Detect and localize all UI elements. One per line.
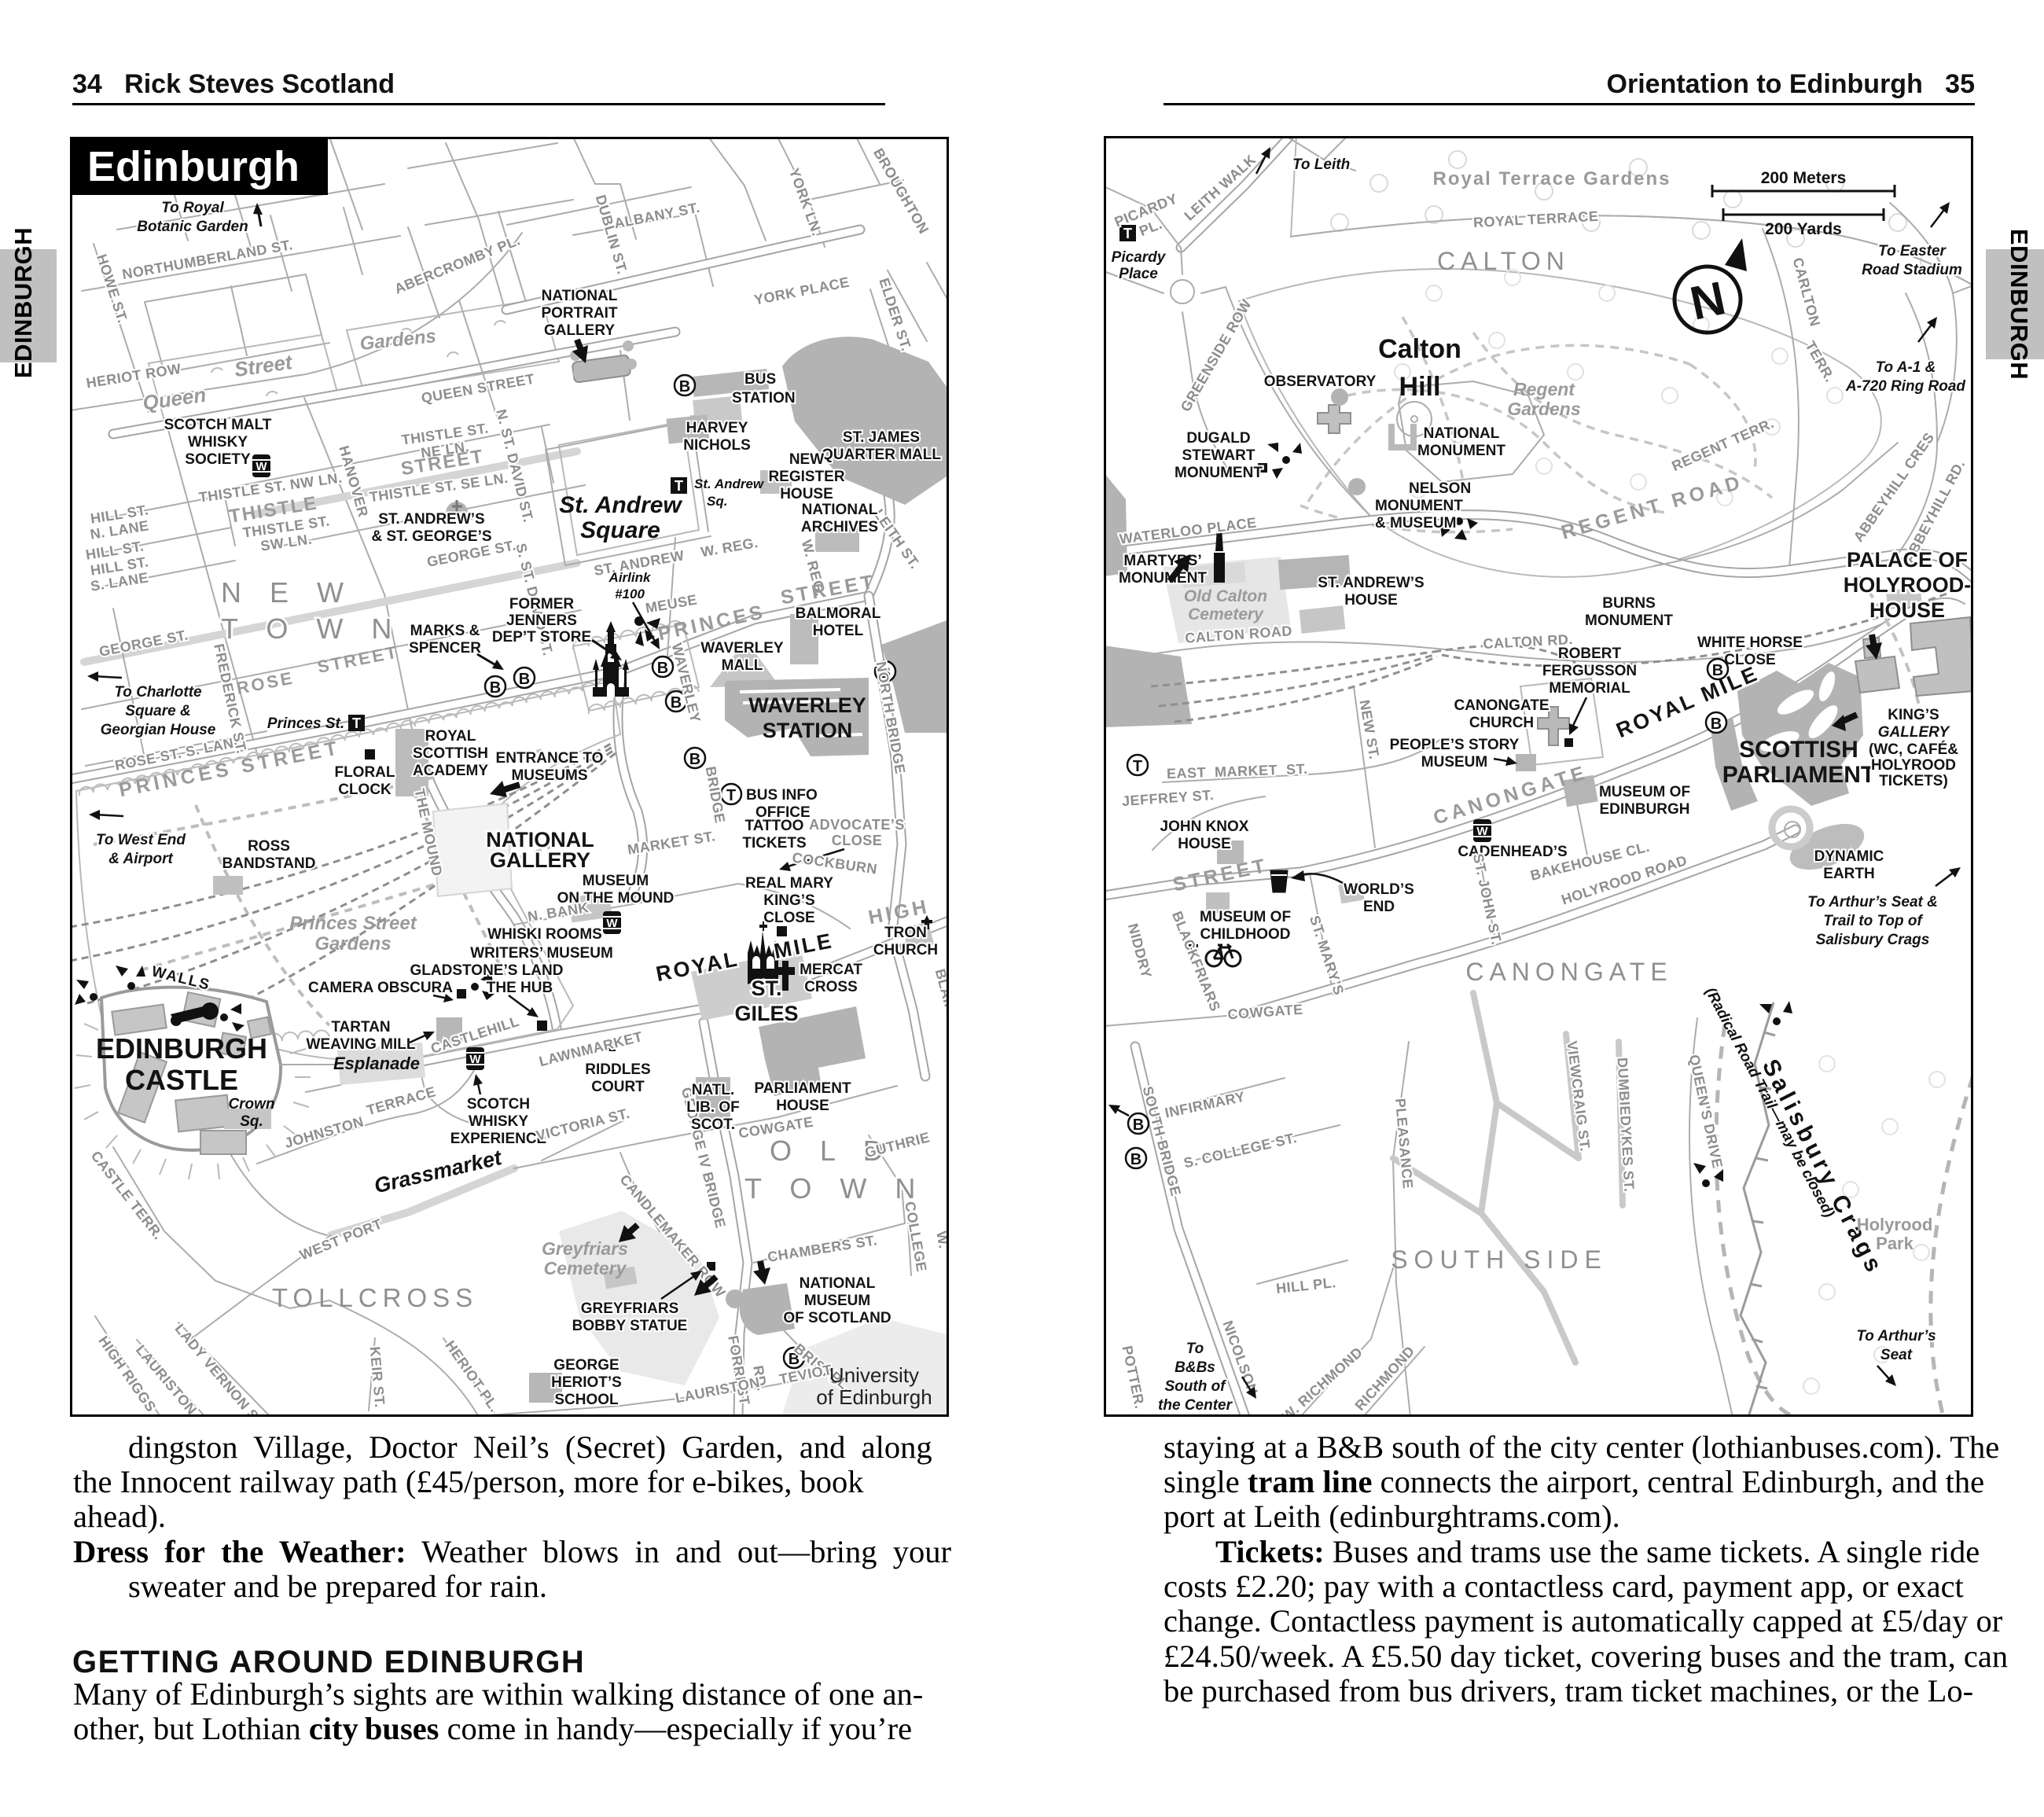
svg-text:CHILDHOOD: CHILDHOOD [1200,926,1290,943]
svg-text:GLADSTONE’S LAND: GLADSTONE’S LAND [410,962,564,979]
svg-text:DEP’T STORE: DEP’T STORE [492,629,591,646]
svg-text:ACADEMY: ACADEMY [413,763,488,779]
svg-text:& Airport: & Airport [108,851,173,867]
svg-text:N E W: N E W [221,576,354,609]
svg-text:EXPERIENCE: EXPERIENCE [450,1131,546,1147]
svg-text:ST.: ST. [751,977,781,1000]
svg-text:DUGALD: DUGALD [1186,430,1250,447]
svg-text:To: To [1186,1341,1204,1357]
svg-text:St. Andrew: St. Andrew [559,492,682,518]
svg-text:WRITERS’ MUSEUM: WRITERS’ MUSEUM [470,945,613,962]
svg-text:NATIONAL: NATIONAL [542,288,618,304]
svg-text:Gardens: Gardens [314,933,391,954]
svg-text:SPENCER: SPENCER [409,640,481,657]
svg-text:SOUTH SIDE: SOUTH SIDE [1391,1245,1608,1274]
svg-text:Sq.: Sq. [707,494,727,509]
svg-text:B: B [689,751,700,768]
svg-text:Trail to Top of: Trail to Top of [1823,913,1923,929]
svg-text:ST. JAMES: ST. JAMES [843,429,920,446]
svg-text:SCOTTISH: SCOTTISH [1739,737,1858,763]
svg-text:END: END [1363,899,1395,915]
svg-text:Airlink: Airlink [608,570,652,585]
svg-text:Calton: Calton [1378,334,1461,364]
svg-text:JOHN KNOX: JOHN KNOX [1160,818,1249,835]
svg-text:MARKS &: MARKS & [410,623,480,639]
svg-text:To Arthur’s Seat &: To Arthur’s Seat & [1807,894,1938,910]
svg-text:HOUSE: HOUSE [1178,836,1231,852]
svg-text:To West End: To West End [96,832,186,848]
svg-text:PEOPLE’S STORY: PEOPLE’S STORY [1390,737,1520,753]
svg-text:EDINBURGH: EDINBURGH [96,1032,267,1065]
svg-text:STATION: STATION [732,390,796,406]
svg-text:TRON: TRON [884,925,927,941]
svg-text:BALMORAL: BALMORAL [796,605,881,622]
svg-text:Botanic Garden: Botanic Garden [137,219,248,235]
svg-text:OBSERVATORY: OBSERVATORY [1264,373,1377,390]
svg-text:CLOSE: CLOSE [832,833,883,848]
svg-text:MALL: MALL [722,657,763,674]
svg-text:STEWART: STEWART [1182,447,1255,464]
svg-text:HOLYROOD: HOLYROOD [1871,757,1956,774]
svg-text:200 Meters: 200 Meters [1761,169,1847,187]
svg-text:KING’S: KING’S [1888,707,1939,723]
svg-text:MUSEUMS: MUSEUMS [511,767,587,784]
svg-text:ROSS: ROSS [248,838,290,855]
svg-text:WHISKY: WHISKY [469,1113,528,1130]
svg-text:SCHOOL: SCHOOL [554,1392,619,1408]
svg-text:Edinburgh: Edinburgh [87,143,300,190]
svg-text:B: B [1711,715,1722,733]
svg-text:University: University [829,1363,919,1387]
svg-text:MONUMENT: MONUMENT [1175,465,1263,481]
svg-text:Cemetery: Cemetery [1188,605,1264,623]
svg-text:B: B [1130,1151,1141,1168]
svg-text:Royal Terrace Gardens: Royal Terrace Gardens [1432,168,1671,189]
svg-text:GALLERY: GALLERY [1878,724,1951,741]
svg-text:SCOTCH: SCOTCH [467,1096,530,1113]
svg-text:ST. ANDREW’S: ST. ANDREW’S [1318,575,1424,591]
svg-text:NICHOLS: NICHOLS [683,437,751,454]
svg-text:A-720 Ring Road: A-720 Ring Road [1845,378,1965,395]
svg-text:Sq.: Sq. [240,1113,263,1130]
svg-text:BOBBY STATUE: BOBBY STATUE [572,1318,688,1334]
svg-text:SCOTTISH: SCOTTISH [413,745,488,762]
svg-text:Seat: Seat [1880,1347,1913,1363]
svg-text:Park: Park [1876,1234,1913,1253]
svg-text:CANONGATE: CANONGATE [1465,958,1672,986]
svg-text:#100: #100 [615,587,645,601]
svg-text:NEW: NEW [789,451,824,468]
svg-text:HARVEY: HARVEY [686,420,748,436]
svg-text:MONUMENT: MONUMENT [1585,612,1673,629]
svg-text:Salisbury Crags: Salisbury Crags [1816,932,1930,948]
svg-text:ROYAL: ROYAL [425,728,476,745]
svg-text:ENTRANCE TO: ENTRANCE TO [496,750,604,767]
svg-text:Square: Square [580,517,660,543]
svg-text:HOTEL: HOTEL [813,623,864,639]
svg-text:CROSS: CROSS [804,979,858,995]
svg-text:W: W [469,1053,481,1066]
svg-text:B: B [1712,662,1723,679]
svg-text:CHURCH: CHURCH [873,942,938,958]
svg-text:Old Calton: Old Calton [1184,587,1267,605]
svg-text:W: W [606,917,618,930]
svg-text:TOLLCROSS: TOLLCROSS [272,1283,478,1312]
svg-text:W: W [1476,825,1488,838]
svg-text:LIB. OF: LIB. OF [686,1099,740,1116]
svg-text:T: T [1133,758,1142,775]
svg-text:T: T [352,715,361,731]
svg-text:PARLIAMENT: PARLIAMENT [1722,762,1875,788]
svg-text:NATIONAL: NATIONAL [1424,425,1500,442]
svg-text:BUS INFO: BUS INFO [746,787,818,804]
svg-text:SCOTCH MALT: SCOTCH MALT [164,417,272,433]
svg-text:PARLIAMENT: PARLIAMENT [754,1080,851,1097]
svg-text:BUS: BUS [744,371,776,388]
svg-text:of Edinburgh: of Edinburgh [816,1385,932,1409]
svg-text:BANDSTAND: BANDSTAND [222,855,316,872]
svg-text:FERGUSSON: FERGUSSON [1542,663,1637,679]
svg-text:CHURCH: CHURCH [1469,715,1534,731]
svg-text:CAMERA OBSCURA: CAMERA OBSCURA [308,980,453,996]
svg-text:CLOCK: CLOCK [338,782,392,798]
svg-text:GREYFRIARS: GREYFRIARS [581,1300,679,1317]
svg-text:To Leith: To Leith [1292,156,1350,173]
svg-text:To A-1 &: To A-1 & [1876,359,1936,376]
svg-text:THE HUB: THE HUB [487,980,553,996]
svg-text:GALLERY: GALLERY [544,322,615,339]
svg-text:GALLERY: GALLERY [490,848,590,872]
svg-text:Picardy: Picardy [1112,249,1167,266]
svg-text:Gardens: Gardens [1507,399,1580,419]
svg-text:MERCAT: MERCAT [800,962,862,978]
svg-text:South of: South of [1164,1378,1226,1395]
svg-text:Greyfriars: Greyfriars [542,1238,628,1259]
svg-text:B: B [657,660,668,677]
svg-text:Princes Street: Princes Street [289,913,417,934]
svg-text:EARTH: EARTH [1823,866,1874,882]
svg-text:WORLD’S: WORLD’S [1344,881,1414,898]
svg-text:MONUMENT: MONUMENT [1375,498,1463,514]
svg-text:B: B [490,679,501,697]
svg-text:ADVOCATE’S: ADVOCATE’S [809,817,905,833]
svg-text:WHISKI ROOMS: WHISKI ROOMS [487,926,602,943]
svg-text:NELSON: NELSON [1409,480,1471,497]
svg-text:BURNS: BURNS [1602,595,1656,612]
svg-text:HOUSE: HOUSE [1869,598,1945,622]
svg-text:(WC, CAFÉ&: (WC, CAFÉ& [1869,741,1958,758]
svg-text:& ST. GEORGE’S: & ST. GEORGE’S [371,528,491,545]
svg-text:GEORGE: GEORGE [553,1357,619,1374]
svg-text:the Center: the Center [1158,1397,1233,1414]
svg-text:WHITE HORSE: WHITE HORSE [1697,634,1803,651]
svg-text:TARTAN: TARTAN [331,1019,390,1035]
svg-text:RIDDLES: RIDDLES [585,1061,650,1078]
svg-text:FORMER: FORMER [509,596,575,612]
svg-text:TICKETS): TICKETS) [1879,773,1948,789]
svg-text:MONUMENT: MONUMENT [1417,443,1505,459]
svg-text:B: B [679,378,690,395]
svg-text:MUSEUM OF: MUSEUM OF [1599,784,1690,800]
svg-text:Holyrood: Holyrood [1857,1215,1933,1234]
svg-text:CLOSE: CLOSE [763,910,814,926]
svg-text:B: B [1133,1116,1144,1134]
svg-text:To Royal: To Royal [161,200,224,216]
svg-text:T O W N: T O W N [744,1172,925,1205]
svg-text:NATIONAL: NATIONAL [800,1275,876,1292]
svg-text:PALACE OF: PALACE OF [1847,548,1968,572]
svg-text:MUSEUM: MUSEUM [583,873,649,889]
svg-text:Regent: Regent [1513,379,1575,399]
svg-text:WEAVING MILL: WEAVING MILL [307,1036,416,1053]
svg-text:ST. ANDREW’S: ST. ANDREW’S [378,511,484,528]
svg-text:FLORAL: FLORAL [334,764,395,781]
svg-text:PORTRAIT: PORTRAIT [541,305,618,322]
svg-text:MUSEUM OF: MUSEUM OF [1200,909,1291,925]
svg-text:HERIOT’S: HERIOT’S [551,1374,622,1391]
svg-text:MUSEUM: MUSEUM [1421,754,1487,771]
svg-text:EDINBURGH: EDINBURGH [1599,801,1689,818]
svg-text:HOUSE: HOUSE [780,486,833,502]
svg-text:T: T [1123,226,1132,241]
svg-text:CASTLE: CASTLE [125,1064,238,1096]
svg-text:HOUSE: HOUSE [1344,592,1398,609]
svg-text:CANONGATE: CANONGATE [1454,697,1549,714]
svg-text:Cemetery: Cemetery [544,1258,627,1278]
svg-text:MONUMENT: MONUMENT [1119,570,1207,587]
svg-text:B&Bs: B&Bs [1175,1359,1215,1376]
svg-text:COURT: COURT [591,1079,645,1095]
svg-text:Hill: Hill [1399,372,1441,402]
svg-text:200 Yards: 200 Yards [1765,220,1842,238]
svg-text:St. Andrew: St. Andrew [694,476,765,491]
svg-text:ARCHIVES: ARCHIVES [801,519,878,535]
svg-text:DYNAMIC: DYNAMIC [1814,848,1884,865]
svg-text:HOLYROOD-: HOLYROOD- [1844,573,1972,597]
svg-text:To Easter: To Easter [1878,243,1947,259]
svg-text:CALTON: CALTON [1437,247,1570,275]
svg-text:MUSEUM: MUSEUM [804,1293,870,1309]
svg-text:SOCIETY: SOCIETY [185,451,251,468]
svg-text:TATTOO: TATTOO [745,818,804,834]
svg-text:WAVERLEY: WAVERLEY [700,640,784,657]
svg-text:KING’S: KING’S [763,892,814,909]
svg-text:Princes St.: Princes St. [267,715,344,732]
svg-text:MEMORIAL: MEMORIAL [1549,680,1630,697]
svg-text:To Charlotte: To Charlotte [114,684,202,701]
svg-text:To Arthur’s: To Arthur’s [1856,1328,1936,1344]
svg-text:NATL.: NATL. [692,1082,735,1098]
svg-text:JENNERS: JENNERS [506,612,577,629]
svg-text:HOUSE: HOUSE [776,1098,829,1114]
svg-text:Georgian House: Georgian House [101,722,216,738]
svg-text:B: B [671,694,682,712]
svg-text:SCOT.: SCOT. [691,1116,735,1133]
svg-text:T: T [726,787,736,804]
svg-text:STATION: STATION [763,719,853,742]
svg-text:Crown: Crown [228,1096,274,1113]
svg-text:WHISKY: WHISKY [188,434,248,451]
svg-text:Place: Place [1119,266,1158,282]
svg-text:B: B [519,671,530,688]
svg-text:OF SCOTLAND: OF SCOTLAND [783,1310,891,1326]
svg-text:REGISTER: REGISTER [768,469,844,485]
svg-text:TICKETS: TICKETS [742,835,806,851]
svg-text:Square &: Square & [125,703,190,719]
svg-text:T O W N: T O W N [221,612,402,645]
svg-text:WAVERLEY: WAVERLEY [748,693,866,717]
svg-text:Road Stadium: Road Stadium [1862,262,1962,278]
svg-text:& MUSEUM: & MUSEUM [1375,515,1456,531]
svg-text:REAL MARY: REAL MARY [745,875,833,892]
svg-text:GILES: GILES [734,1002,798,1025]
svg-text:W: W [256,460,267,473]
svg-text:NATIONAL: NATIONAL [802,502,878,518]
svg-text:QUARTER MALL: QUARTER MALL [822,447,941,463]
svg-text:T: T [675,478,683,494]
svg-text:Esplanade: Esplanade [333,1054,420,1073]
svg-text:ROBERT: ROBERT [1558,646,1622,662]
